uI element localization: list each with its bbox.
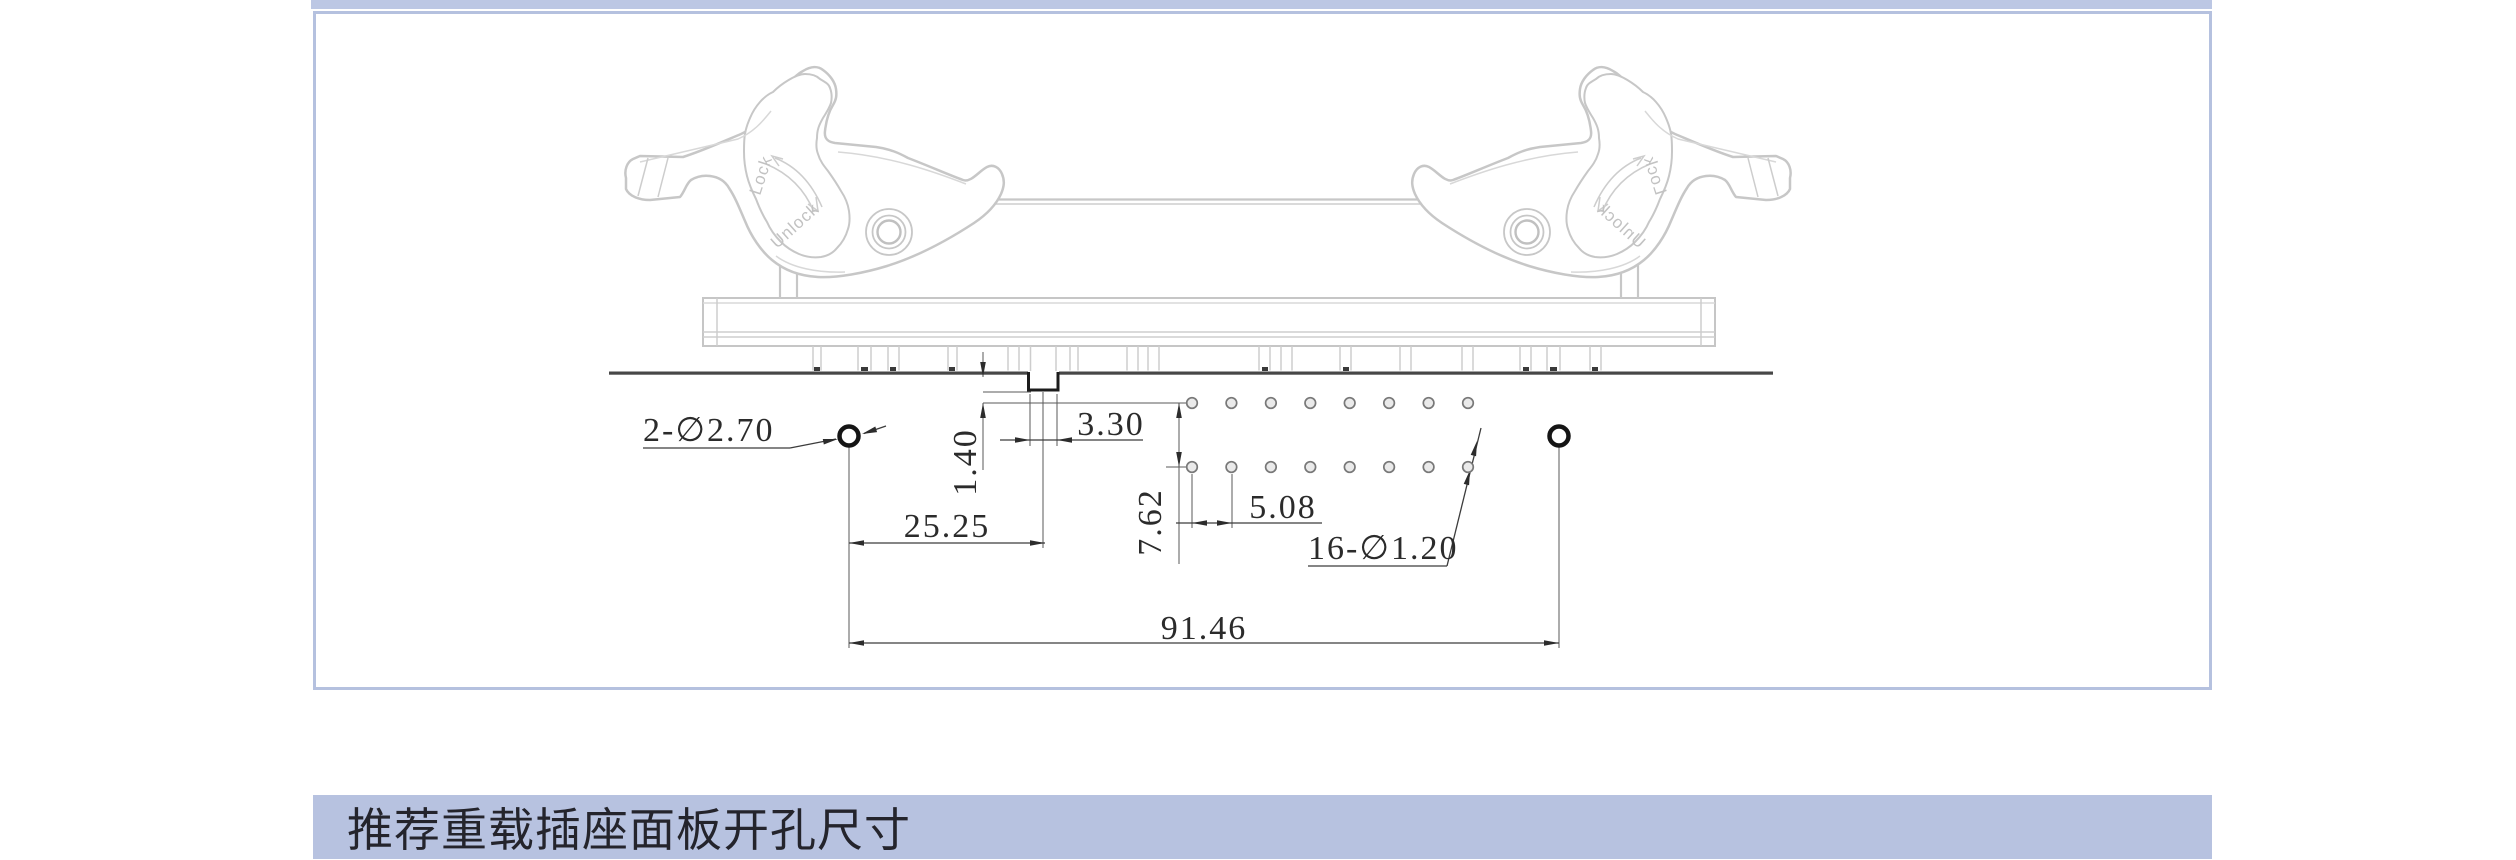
left-lever <box>625 67 1003 277</box>
panel-notch <box>1029 372 1059 390</box>
dim-slot-offset: 1.40 <box>947 428 984 496</box>
mounting-hole-right <box>1550 427 1569 446</box>
contact-pins <box>813 346 1601 371</box>
lever-stems <box>780 258 1638 298</box>
dim-mounting-holes: 2-∅2.70 <box>643 412 774 449</box>
section-title: 推荐重载插座面板开孔尺寸 <box>313 794 911 860</box>
dim-pin-pitch: 5.08 <box>1249 489 1317 526</box>
pin-tips <box>814 367 1598 371</box>
dim-hole-span: 91.46 <box>1161 610 1248 647</box>
right-lever <box>1412 67 1790 277</box>
mounting-flange <box>703 298 1715 346</box>
section-header-bar: 推荐重载插座面板开孔尺寸 <box>313 795 2212 859</box>
panel-edge-line <box>609 372 1773 375</box>
dim-row-pitch: 7.62 <box>1132 488 1169 556</box>
pin-holes <box>1187 398 1474 473</box>
extension-lines <box>849 352 1559 648</box>
hood-top-edge <box>985 200 1425 205</box>
dim-slot-width: 3.30 <box>1077 406 1145 443</box>
dim-pin-holes: 16-∅1.20 <box>1308 530 1458 567</box>
mounting-hole-left <box>840 427 859 446</box>
dim-hole-to-center: 25.25 <box>904 508 991 545</box>
connector-technical-drawing: Lock Unlock <box>0 0 2516 859</box>
